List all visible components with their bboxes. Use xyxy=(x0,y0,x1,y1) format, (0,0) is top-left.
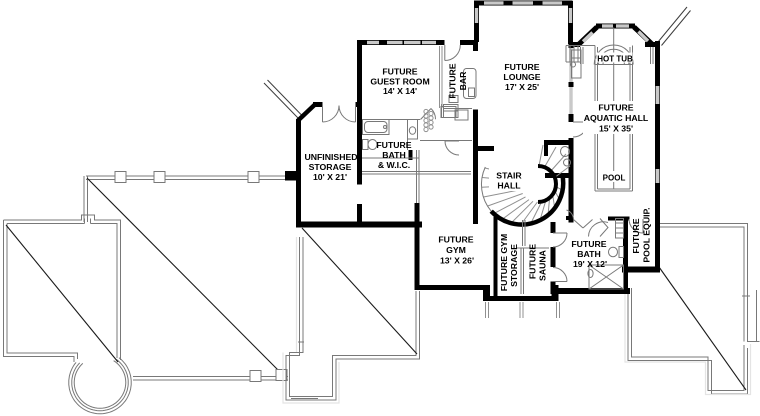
svg-text:POOL EQUIP.: POOL EQUIP. xyxy=(642,207,652,262)
svg-text:STAIR: STAIR xyxy=(496,171,522,181)
svg-text:FUTURE: FUTURE xyxy=(528,244,538,279)
svg-text:UNFINISHED: UNFINISHED xyxy=(304,152,357,162)
svg-text:FUTURE: FUTURE xyxy=(382,67,417,77)
svg-text:SAUNA: SAUNA xyxy=(538,249,548,281)
svg-text:BATH: BATH xyxy=(382,150,405,160)
svg-text:15' X 35': 15' X 35' xyxy=(599,124,633,134)
svg-text:BAR: BAR xyxy=(458,71,468,91)
svg-text:FUTURE: FUTURE xyxy=(504,62,539,72)
svg-text:19' X 12': 19' X 12' xyxy=(573,259,607,269)
svg-text:14' X 14': 14' X 14' xyxy=(383,86,417,96)
svg-text:BATH: BATH xyxy=(577,249,600,259)
svg-text:FUTURE: FUTURE xyxy=(631,218,641,253)
svg-text:STORAGE: STORAGE xyxy=(509,244,519,287)
svg-text:AQUATIC HALL: AQUATIC HALL xyxy=(584,113,649,123)
svg-text:FUTURE: FUTURE xyxy=(448,63,458,98)
svg-text:POOL: POOL xyxy=(603,174,626,183)
svg-text:FUTURE: FUTURE xyxy=(438,235,473,245)
svg-text:17' X 25': 17' X 25' xyxy=(505,82,539,92)
svg-text:LOUNGE: LOUNGE xyxy=(503,72,540,82)
svg-text:10' X 21': 10' X 21' xyxy=(313,172,347,182)
svg-text:13' X 26': 13' X 26' xyxy=(440,256,474,266)
svg-text:HOT TUB: HOT TUB xyxy=(597,55,633,64)
svg-text:& W.I.C.: & W.I.C. xyxy=(378,160,410,170)
svg-text:GYM: GYM xyxy=(446,245,466,255)
svg-text:FUTURE: FUTURE xyxy=(376,140,411,150)
svg-text:GUEST ROOM: GUEST ROOM xyxy=(370,77,429,87)
svg-text:HALL: HALL xyxy=(497,181,521,191)
svg-text:FUTURE: FUTURE xyxy=(598,103,633,113)
svg-text:STORAGE: STORAGE xyxy=(309,162,352,172)
svg-text:FUTURE GYM: FUTURE GYM xyxy=(499,234,509,291)
svg-text:FUTURE: FUTURE xyxy=(571,239,606,249)
